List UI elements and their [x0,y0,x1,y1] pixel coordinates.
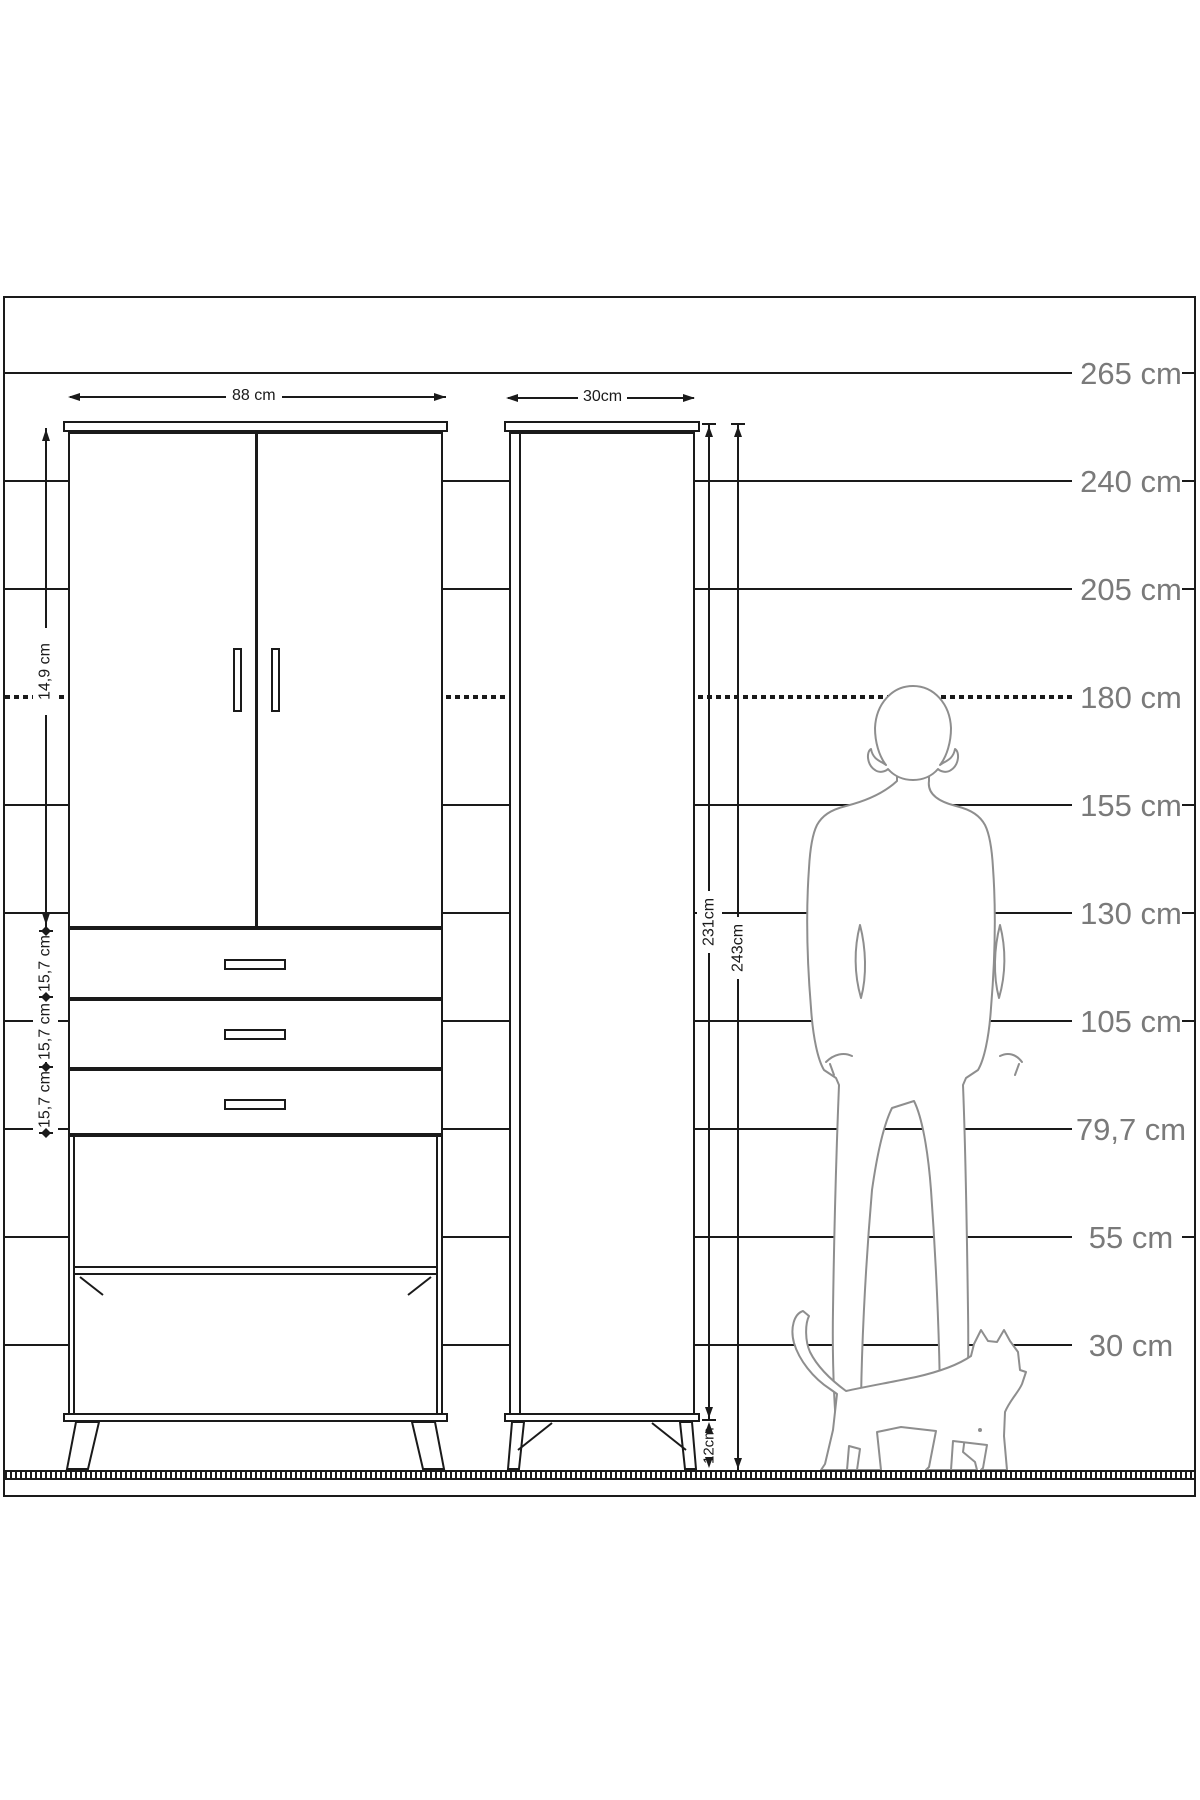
tall-cabinet-total-height-dim: 243cm [726,917,751,979]
wardrobe-right-door [258,434,441,926]
drawer-bottom-line [68,1133,443,1137]
drawer-divider-2 [68,1067,443,1071]
height-tick-205 [1182,588,1194,590]
drawer-handle-1 [224,959,286,970]
height-label-105: 105 cm [1072,1005,1190,1038]
wardrobe-width-dim: 88 cm [226,387,282,405]
wardrobe-base-board [63,1413,448,1422]
floor-hatch-line [5,1470,1194,1480]
drawer-handle-3 [224,1099,286,1110]
height-tick-130 [1182,912,1194,914]
drawer-height-dim-2: 15,7 cm [33,1001,58,1062]
height-tick-265 [1182,372,1194,374]
wardrobe-left-door [70,434,255,926]
open-shelf-right-wall [436,1137,438,1413]
drawer-divider-1 [68,997,443,1001]
height-label-205: 205 cm [1072,573,1190,606]
drawer-height-dim-3: 15,7 cm [33,1069,58,1130]
dim-tick [702,1419,716,1421]
dimension-diagram: 265 cm 240 cm 205 cm 180 cm 155 cm 130 c… [0,0,1200,1800]
door-gap-line [255,434,258,926]
open-shelf-left-wall [73,1137,75,1413]
right-door-handle [271,648,280,712]
drawer-handle-2 [224,1029,286,1040]
dim-tick [39,996,53,998]
door-drawer-divider [68,926,443,930]
tall-cabinet-leg-height-dim: 12cm [697,1423,721,1469]
height-label-155: 155 cm [1072,789,1190,822]
height-label-265: 265 cm [1072,357,1190,390]
tall-cabinet-body [509,434,695,1413]
height-label-55: 55 cm [1072,1221,1190,1254]
tall-cabinet-width-dim: 30cm [578,388,627,406]
height-tick-155 [1182,804,1194,806]
tall-cabinet-body-height-dim: 231cm [697,891,722,953]
height-label-240: 240 cm [1072,465,1190,498]
wardrobe-upper-section-dim: 14,9 cm [33,628,58,715]
dim-tick [39,1066,53,1068]
tall-cabinet-door-edge-line [519,434,521,1413]
dim-tick [39,1132,53,1134]
middle-shelf-board [75,1266,436,1275]
height-tick-105 [1182,1020,1194,1022]
height-gridline-265 [5,372,1072,374]
tall-cabinet-base-board [504,1413,700,1422]
left-door-handle [233,648,242,712]
height-label-30: 30 cm [1072,1329,1190,1362]
height-tick-55 [1182,1236,1194,1238]
height-label-180: 180 cm [1072,681,1190,714]
height-tick-240 [1182,480,1194,482]
height-label-130: 130 cm [1072,897,1190,930]
dim-tick [39,930,53,932]
height-label-79: 79,7 cm [1072,1113,1190,1146]
drawer-height-dim-1: 15,7 cm [33,933,58,994]
